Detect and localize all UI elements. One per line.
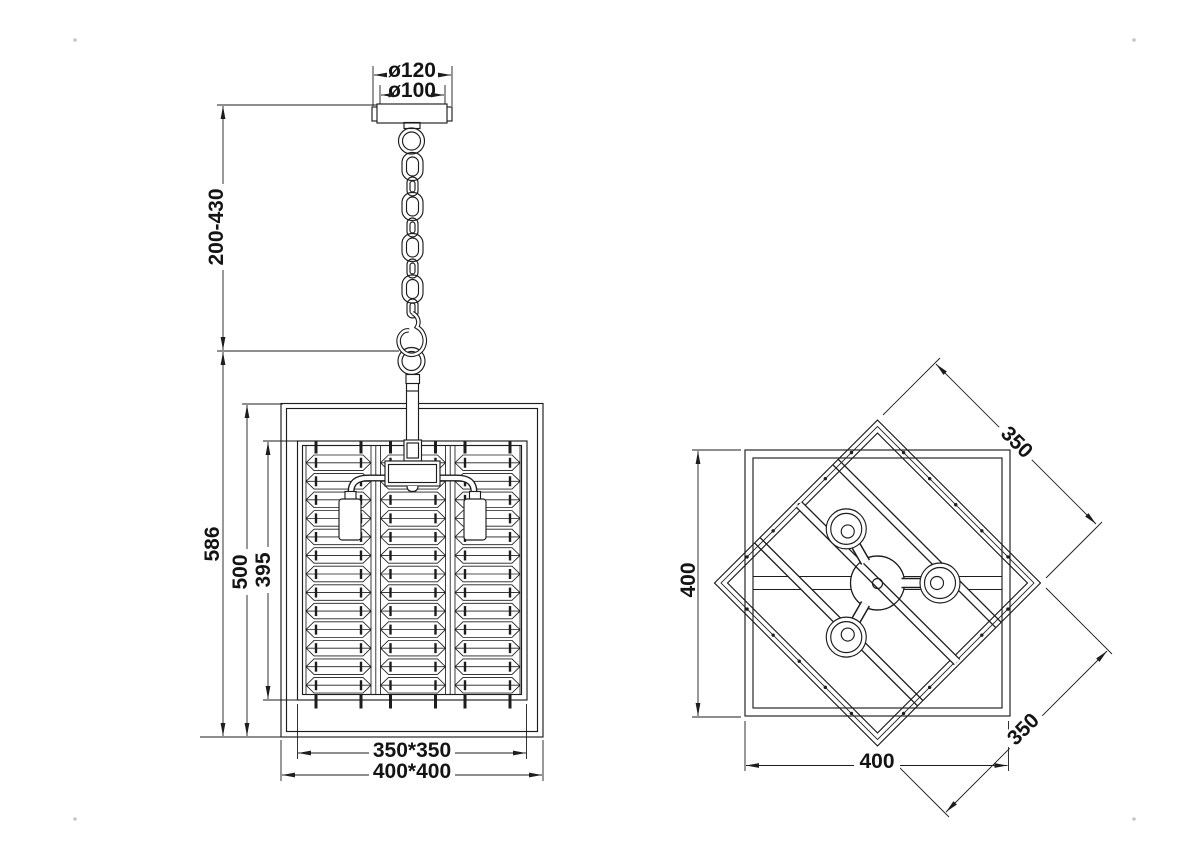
right-lamp-socket — [464, 492, 486, 541]
dim-plan-width: 400 — [854, 750, 900, 773]
loop-collar — [406, 375, 420, 384]
stem — [407, 383, 419, 441]
stem-and-lamps — [339, 375, 486, 541]
dimension-arrowheads — [221, 73, 1109, 814]
top-view: 400 400 350 350 — [677, 358, 1112, 817]
front-dimension-lines — [200, 66, 543, 781]
chain-links — [402, 153, 423, 319]
dim-frame-width: 400*400 — [369, 760, 455, 783]
hub-finial — [407, 486, 418, 492]
left-lamp-socket — [339, 492, 361, 541]
canopy-front-plate — [377, 104, 447, 123]
dim-shade-side-upper: 350 — [992, 418, 1041, 467]
dim-text: ø100 — [388, 79, 436, 102]
pendant-lamp-technical-drawing: ø120 ø100 200-430 586 500 395 350*350 4 — [0, 0, 1200, 848]
dim-shade-side-lower: 350 — [999, 705, 1048, 754]
dim-text: 350*350 — [373, 739, 451, 762]
dim-frame-height: 500 — [229, 549, 252, 595]
front-view: ø120 ø100 200-430 586 500 395 350*350 4 — [200, 59, 543, 783]
dim-overall-height: 586 — [201, 521, 224, 567]
s-hook — [399, 313, 425, 355]
dim-canopy-inner-diameter: ø100 — [383, 79, 441, 102]
dim-text: 400*400 — [373, 760, 451, 783]
dim-shade-width: 350*350 — [369, 739, 455, 762]
dim-shade-height: 395 — [252, 547, 275, 593]
dim-text: 395 — [252, 552, 275, 587]
dim-text: 500 — [229, 554, 252, 589]
dim-text: 400 — [677, 562, 700, 597]
top-ring-inner — [403, 132, 421, 150]
drawing-sheet: ø120 ø100 200-430 586 500 395 350*350 4 — [0, 0, 1200, 848]
dim-text: 400 — [859, 750, 894, 773]
dim-text: 200-430 — [205, 188, 228, 265]
suspension-chain — [398, 128, 425, 375]
dim-text: 586 — [201, 526, 224, 561]
dim-suspension-height: 200-430 — [205, 184, 228, 270]
dim-plan-height: 400 — [677, 557, 700, 603]
sheet-corner-marks — [73, 38, 1136, 821]
ceiling-canopy — [372, 104, 452, 129]
